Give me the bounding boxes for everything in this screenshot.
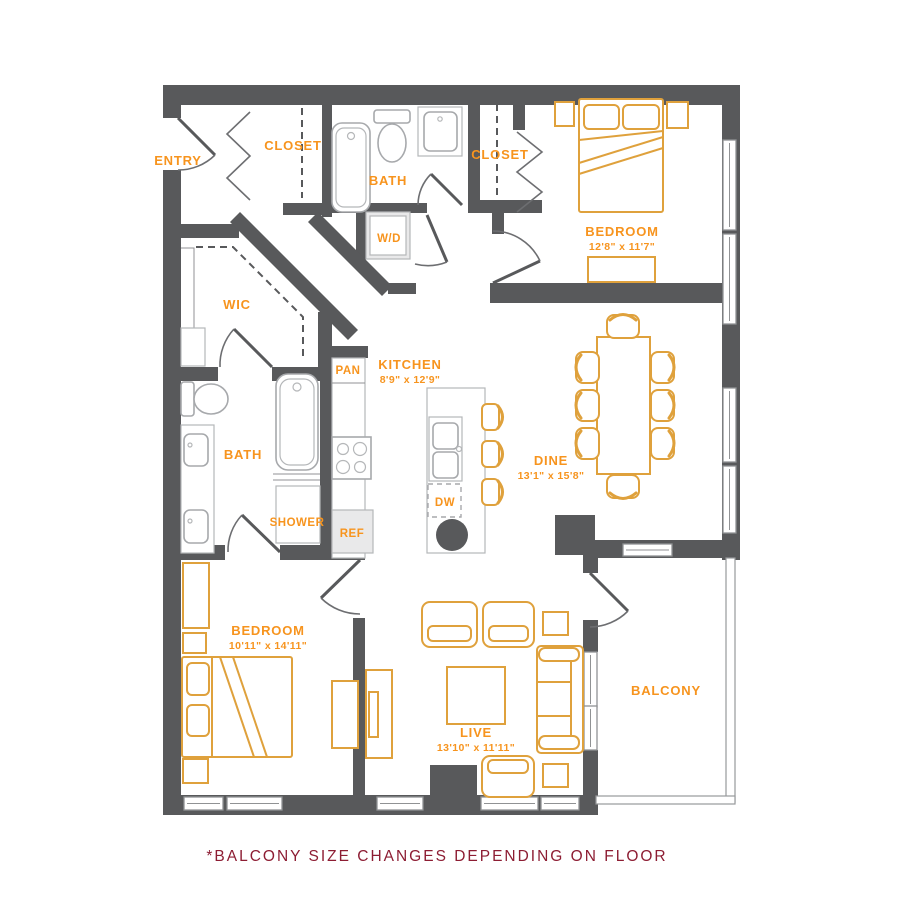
dining-chair [576, 390, 599, 421]
dining-dims: 13'1" x 15'8" [518, 470, 585, 482]
floor-plan-page: ENTRY CLOSET BATH W/D CLOSET BEDROOM 12'… [0, 0, 900, 900]
bedroom1-door [493, 231, 540, 283]
bedroom2-dims: 10'11" x 14'11" [229, 640, 307, 652]
entry-label: ENTRY [154, 153, 202, 168]
wall-left [163, 170, 181, 815]
fireplace-column [430, 765, 477, 807]
nightstand [555, 102, 574, 126]
nightstand [183, 759, 208, 783]
bedroom1-label: BEDROOM [585, 224, 659, 239]
sofa [537, 646, 583, 753]
bath-upper-door [418, 174, 462, 205]
stove [332, 437, 371, 479]
island-stools [482, 404, 503, 505]
bathtub-upper [332, 123, 370, 212]
fixtures [181, 107, 485, 558]
window [481, 797, 538, 810]
window [541, 797, 579, 810]
dining-chair [651, 390, 674, 421]
bench [332, 681, 358, 748]
bed-queen [182, 657, 292, 757]
double-vanity-main [181, 425, 214, 553]
window [184, 797, 223, 810]
washer-dryer-label: W/D [377, 233, 401, 245]
shower-label: SHOWER [270, 517, 325, 529]
window [584, 706, 597, 750]
armchair [483, 602, 534, 647]
wic-label: WIC [223, 297, 251, 312]
nightstand [667, 102, 688, 128]
balcony-outline [596, 558, 735, 804]
bar-stool [482, 441, 503, 467]
kitchen-label: KITCHEN [378, 357, 441, 372]
toilet-main [181, 382, 228, 416]
bath-upper-label: BATH [369, 173, 407, 188]
wall-kitchen-bath-divider [320, 380, 332, 558]
island-column [436, 519, 468, 551]
closet-entry-bifold-door [227, 112, 250, 200]
bath-main-label: BATH [224, 447, 262, 462]
wic-door [220, 329, 272, 367]
dining-chair [607, 315, 639, 339]
wall-bath-main-north-a [181, 367, 218, 381]
window [377, 797, 423, 810]
wall-entry-south [181, 224, 239, 238]
wic-shelf-line [181, 248, 194, 328]
balcony-door [590, 573, 628, 627]
wall-pantry-top [330, 346, 368, 358]
window [584, 652, 597, 707]
bar-stool [482, 479, 503, 505]
wall-closet-entry-south [283, 203, 332, 215]
coffee-table [447, 667, 505, 724]
pantry-label: PAN [336, 365, 361, 377]
tv-console [366, 670, 392, 758]
dining-chair [607, 475, 639, 499]
bathtub-main [276, 374, 318, 470]
armchair [482, 756, 534, 797]
corridor-door [415, 215, 447, 266]
closet-bedroom1-label: CLOSET [471, 147, 529, 162]
window [623, 544, 672, 556]
balcony-edge-bottom [596, 796, 735, 804]
side-table [183, 633, 206, 653]
dining-chair [651, 352, 674, 383]
wall-diagonal-wic [230, 212, 358, 340]
living-label: LIVE [460, 725, 492, 740]
wall-closet-bedroom1-south [468, 200, 542, 213]
dining-table [597, 337, 650, 474]
balcony-label: BALCONY [631, 683, 701, 698]
refrigerator-label: REF [340, 528, 365, 540]
shower-stall [273, 474, 320, 543]
side-table [543, 612, 568, 635]
side-table [543, 764, 568, 787]
balcony-edge-right [726, 558, 735, 802]
kitchen-dims: 8'9" x 12'9" [380, 374, 441, 386]
dresser [183, 563, 209, 628]
kitchen-island [427, 388, 485, 553]
dining-set [576, 315, 674, 499]
balcony-footnote: *BALCONY SIZE CHANGES DEPENDING ON FLOOR [206, 848, 667, 865]
floor-plan-canvas: ENTRY CLOSET BATH W/D CLOSET BEDROOM 12'… [0, 0, 900, 900]
armchair [422, 602, 477, 647]
dining-chair [651, 428, 674, 459]
bedroom2-label: BEDROOM [231, 623, 305, 638]
window [723, 234, 736, 324]
window [723, 140, 736, 230]
wall-bedroom1-south [490, 283, 740, 303]
wic-shelf [181, 328, 205, 366]
wall-left-stub [163, 85, 181, 118]
wall-closet-bedroom1-stub [513, 85, 525, 130]
dining-chair [576, 352, 599, 383]
wall-dine-column [555, 515, 595, 555]
wall-balcony-divider-c [583, 750, 598, 795]
bed-queen [579, 99, 663, 212]
bedroom2-door [321, 560, 360, 614]
closet-entry-label: CLOSET [264, 138, 322, 153]
sink-vanity-upper [418, 107, 462, 156]
living-dims: 13'10" x 11'11" [437, 742, 515, 754]
wall-balcony-divider-b [583, 620, 598, 652]
wall-closet-bath-divider [322, 105, 332, 217]
bedroom1-furniture [555, 99, 688, 282]
window [723, 466, 736, 533]
wall-corridor-foot [388, 283, 416, 294]
dining-label: DINE [534, 453, 568, 468]
dining-chair [576, 428, 599, 459]
toilet-upper [374, 110, 410, 162]
bench [588, 257, 655, 282]
dishwasher-label: DW [435, 497, 455, 509]
bar-stool [482, 404, 503, 430]
window [227, 797, 282, 810]
bedroom1-dims: 12'8" x 11'7" [589, 241, 655, 253]
window [723, 388, 736, 462]
